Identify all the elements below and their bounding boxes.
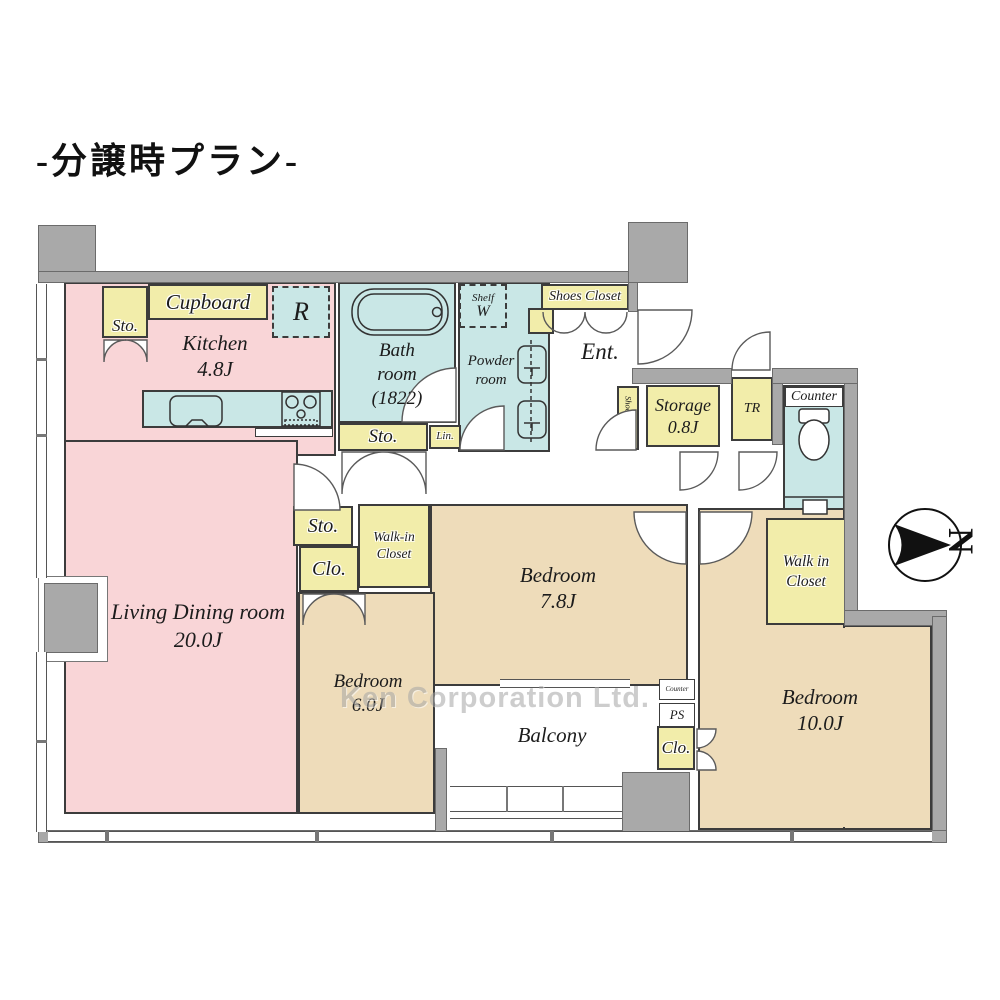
living-name: Living Dining room <box>56 598 340 626</box>
balcony-label: Balcony <box>478 722 626 748</box>
bedroom-right-name: Bedroom <box>730 684 910 710</box>
vanity-tap <box>524 423 540 431</box>
compass-north-letter: N <box>940 528 982 554</box>
bathroom-name-2: room <box>343 363 451 387</box>
powder-name-1: Powder <box>450 352 532 371</box>
stove-grill <box>285 420 317 425</box>
vanity-sink-icon <box>518 401 546 438</box>
door-trunk-bottom <box>739 452 777 490</box>
bathroom-size: (1822) <box>343 387 451 411</box>
bedroom-center-size: 7.8J <box>468 588 648 614</box>
stove-burner <box>304 396 316 408</box>
door-bedroom-center <box>634 512 686 564</box>
door-kitchen-storage <box>104 340 126 362</box>
living-size: 20.0J <box>56 626 340 654</box>
door-bedroom-right <box>700 512 752 564</box>
door-closet-bottom <box>697 751 716 770</box>
bedroom-center-label: Bedroom 7.8J <box>468 562 648 615</box>
folding-door-shoes-closet <box>543 312 627 333</box>
living-dining-label: Living Dining room 20.0J <box>56 598 340 653</box>
bedroom-right-label: Bedroom 10.0J <box>730 684 910 737</box>
powder-room-label: Powder room <box>450 352 532 390</box>
door-powder <box>460 406 504 450</box>
kitchen-label: Kitchen 4.8J <box>140 330 290 383</box>
door-entry <box>638 310 692 364</box>
door-closet-bottom <box>697 729 716 748</box>
kitchen-sink-notch <box>186 420 208 426</box>
watermark: Ken Corporation Ltd. <box>340 682 670 715</box>
stove-burner <box>286 396 298 408</box>
stove-burner <box>297 410 305 418</box>
kitchen-size: 4.8J <box>140 356 290 382</box>
door-living <box>294 464 340 510</box>
door-hall-storage <box>342 452 384 494</box>
kitchen-sink-icon <box>170 396 222 426</box>
door-trunk-top <box>732 332 770 370</box>
bedroom-right-size: 10.0J <box>730 710 910 736</box>
door-hall-storage <box>384 452 426 494</box>
bedroom-center-name: Bedroom <box>468 562 648 588</box>
bathroom-name-1: Bath <box>343 339 451 363</box>
door-ent-hall <box>596 410 636 450</box>
doors-and-fixtures-layer <box>0 0 1000 1000</box>
bathroom-label: Bath room (1822) <box>343 339 451 410</box>
toilet-bowl-icon <box>799 420 829 460</box>
powder-name-2: room <box>450 371 532 390</box>
door-storage-room <box>680 452 718 490</box>
bathtub-icon-inner <box>358 294 442 330</box>
kitchen-name: Kitchen <box>140 330 290 356</box>
entrance-label: Ent. <box>558 338 642 367</box>
floor-plan: -分譲時プラン- Cupboard Sto. Sto. Lin. Shoes C… <box>0 0 1000 1000</box>
bathtub-faucet-icon <box>433 308 442 317</box>
toilet-side-counter <box>803 500 827 514</box>
